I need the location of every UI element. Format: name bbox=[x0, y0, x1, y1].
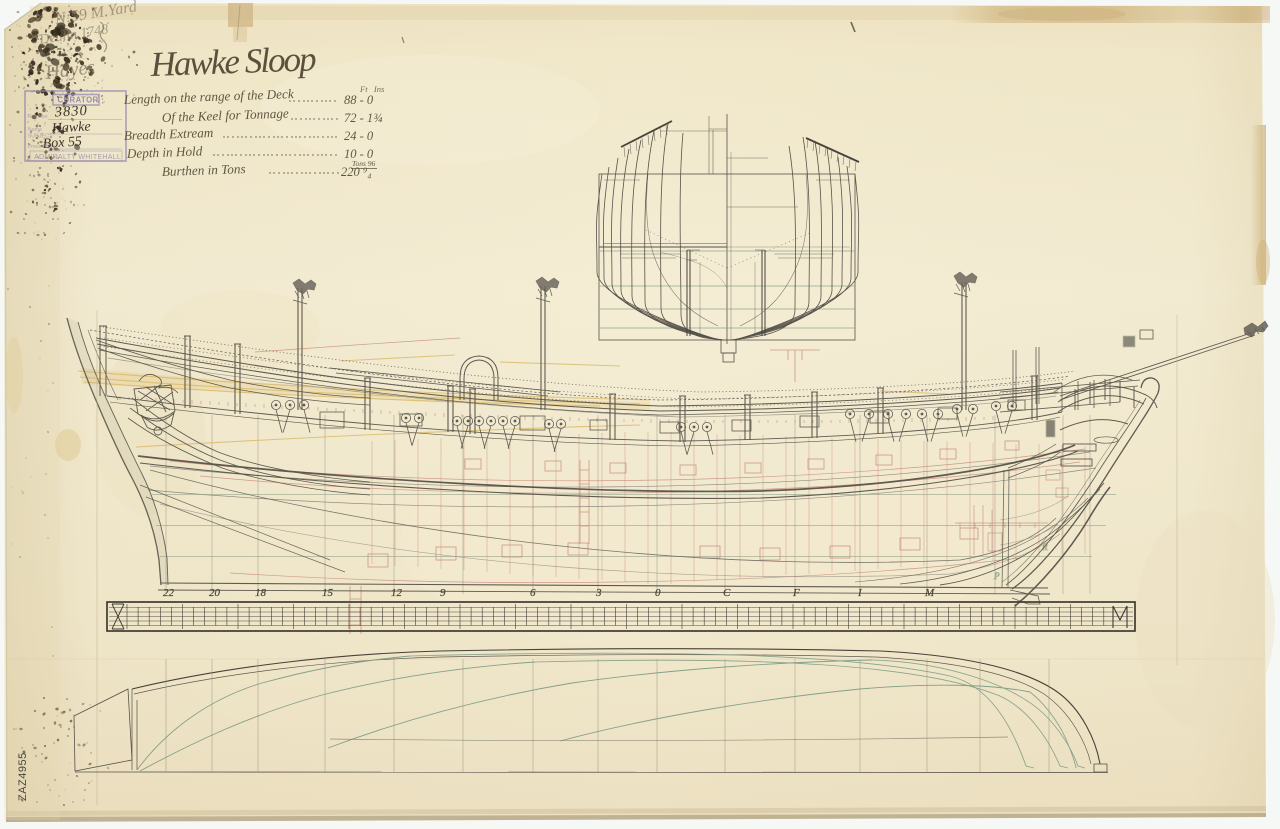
svg-text:P: P bbox=[993, 571, 1000, 581]
svg-text:Register: Register bbox=[28, 114, 49, 120]
svg-text:Burthen in Tons: Burthen in Tons bbox=[162, 161, 246, 179]
svg-text:3830: 3830 bbox=[53, 103, 88, 121]
svg-text:Hawke: Hawke bbox=[50, 119, 91, 136]
svg-text:ZAZ4955: ZAZ4955 bbox=[17, 752, 29, 801]
svg-text:12: 12 bbox=[391, 587, 403, 599]
svg-text:0: 0 bbox=[655, 587, 661, 599]
svg-text:Hawke Sloop: Hawke Sloop bbox=[149, 39, 317, 84]
svg-text:24 - 0: 24 - 0 bbox=[344, 129, 374, 143]
svg-text:Breadth Extream: Breadth Extream bbox=[124, 125, 214, 143]
svg-text:15: 15 bbox=[322, 587, 334, 599]
svg-text:F: F bbox=[792, 587, 800, 599]
svg-text:20: 20 bbox=[209, 587, 221, 599]
svg-text::: : bbox=[101, 96, 104, 106]
svg-text:ADMIRALTY WHITEHALL: ADMIRALTY WHITEHALL bbox=[34, 154, 121, 161]
svg-text:C: C bbox=[723, 587, 731, 599]
svg-text:9: 9 bbox=[440, 587, 446, 599]
svg-text:88 - 0: 88 - 0 bbox=[344, 93, 374, 107]
svg-text:Name: Name bbox=[28, 127, 43, 133]
svg-text:6: 6 bbox=[530, 587, 536, 599]
svg-text:18: 18 bbox=[255, 587, 267, 599]
svg-text:22: 22 bbox=[163, 587, 175, 599]
svg-text:72 - 1¾: 72 - 1¾ bbox=[344, 111, 383, 125]
svg-text:Box 55: Box 55 bbox=[42, 134, 82, 152]
svg-text:M: M bbox=[924, 587, 935, 599]
svg-text:Depth in Hold: Depth in Hold bbox=[126, 143, 203, 161]
svg-text:3: 3 bbox=[595, 587, 602, 599]
svg-text:Tons 96: Tons 96 bbox=[352, 159, 376, 168]
